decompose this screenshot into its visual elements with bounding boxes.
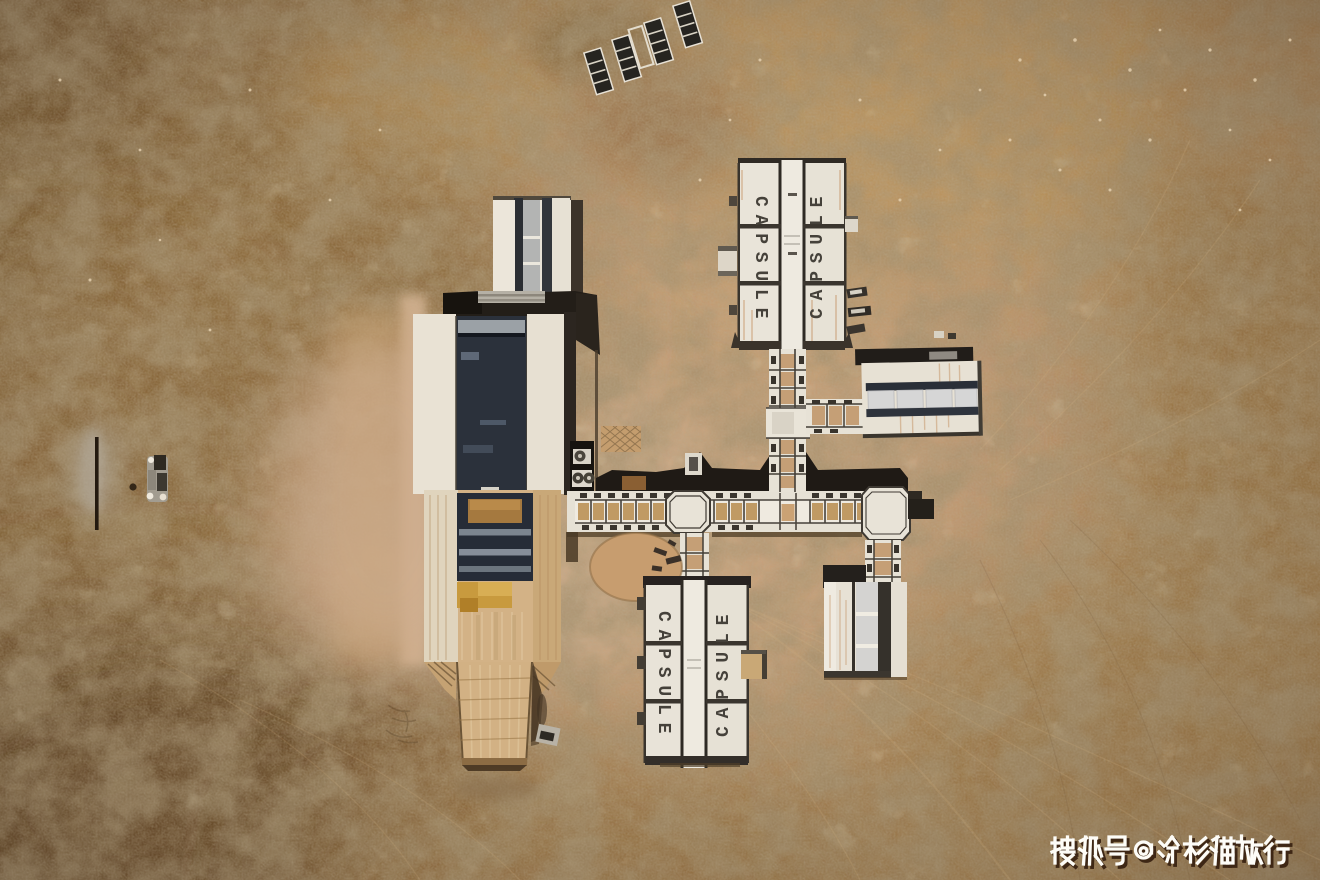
svg-text:CAPSULE: CAPSULE [750, 196, 770, 326]
svg-text:CAPSULE: CAPSULE [714, 607, 734, 737]
svg-text:CAPSULE: CAPSULE [653, 611, 673, 741]
svg-text:CAPSULE: CAPSULE [808, 189, 828, 319]
